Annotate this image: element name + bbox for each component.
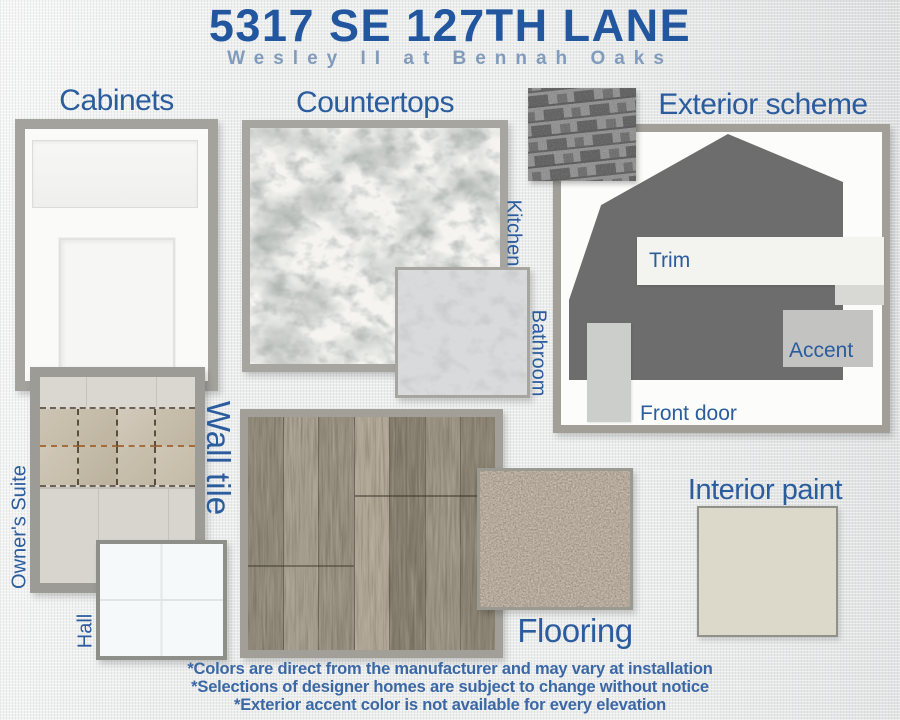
carpet-swatch: [477, 468, 633, 610]
wall-tile-heading: Wall tile: [199, 401, 237, 515]
kitchen-label: Kitchen: [502, 200, 525, 267]
address-title: 5317 SE 127TH LANE: [0, 0, 900, 52]
front-door-label: Front door: [640, 402, 737, 426]
flooring-heading: Flooring: [500, 612, 650, 650]
cabinet-door-panel: [59, 238, 175, 382]
front-door-color-swatch: [587, 323, 631, 422]
disclaimer-line-2: *Selections of designer homes are subjec…: [0, 678, 900, 696]
disclaimer-line-1: *Colors are direct from the manufacturer…: [0, 660, 900, 678]
trim-color-band: Trim: [637, 237, 884, 285]
roof-shingle-swatch: [528, 88, 636, 181]
exterior-scheme-heading: Exterior scheme: [636, 88, 890, 122]
disclaimer-line-3: *Exterior accent color is not available …: [0, 696, 900, 714]
interior-paint-heading: Interior paint: [650, 474, 880, 507]
countertops-heading: Countertops: [242, 86, 508, 120]
wall-tile-accent-band: [40, 407, 195, 487]
bathroom-label: Bathroom: [527, 310, 550, 397]
hall-tile-swatch: [96, 540, 227, 660]
carpet-texture: [480, 471, 630, 607]
interior-paint-swatch: [697, 506, 838, 637]
disclaimer-block: *Colors are direct from the manufacturer…: [0, 660, 900, 714]
accent-label: Accent: [789, 339, 853, 363]
cabinets-heading: Cabinets: [15, 84, 218, 118]
plank-seam: [248, 565, 354, 567]
bathroom-countertop-swatch: [395, 267, 530, 398]
hall-label: Hall: [75, 614, 98, 648]
cabinet-swatch: [15, 119, 218, 391]
bathroom-counter-texture: [398, 270, 527, 395]
trim-label: Trim: [649, 249, 690, 273]
wall-tile-field-top: [40, 377, 195, 407]
cabinet-drawer-front: [32, 140, 198, 208]
wood-flooring-swatch: [240, 409, 503, 658]
shingle-texture: [528, 88, 636, 181]
community-subtitle: Wesley II at Bennah Oaks: [0, 48, 900, 70]
design-board: 5317 SE 127TH LANE Wesley II at Bennah O…: [0, 0, 900, 720]
plank-seam: [355, 495, 495, 497]
owners-suite-label: Owner's Suite: [9, 465, 32, 589]
trim-side-strip: [835, 285, 884, 305]
accent-color-swatch: Accent: [783, 310, 873, 367]
wood-grain-texture: [248, 417, 495, 650]
